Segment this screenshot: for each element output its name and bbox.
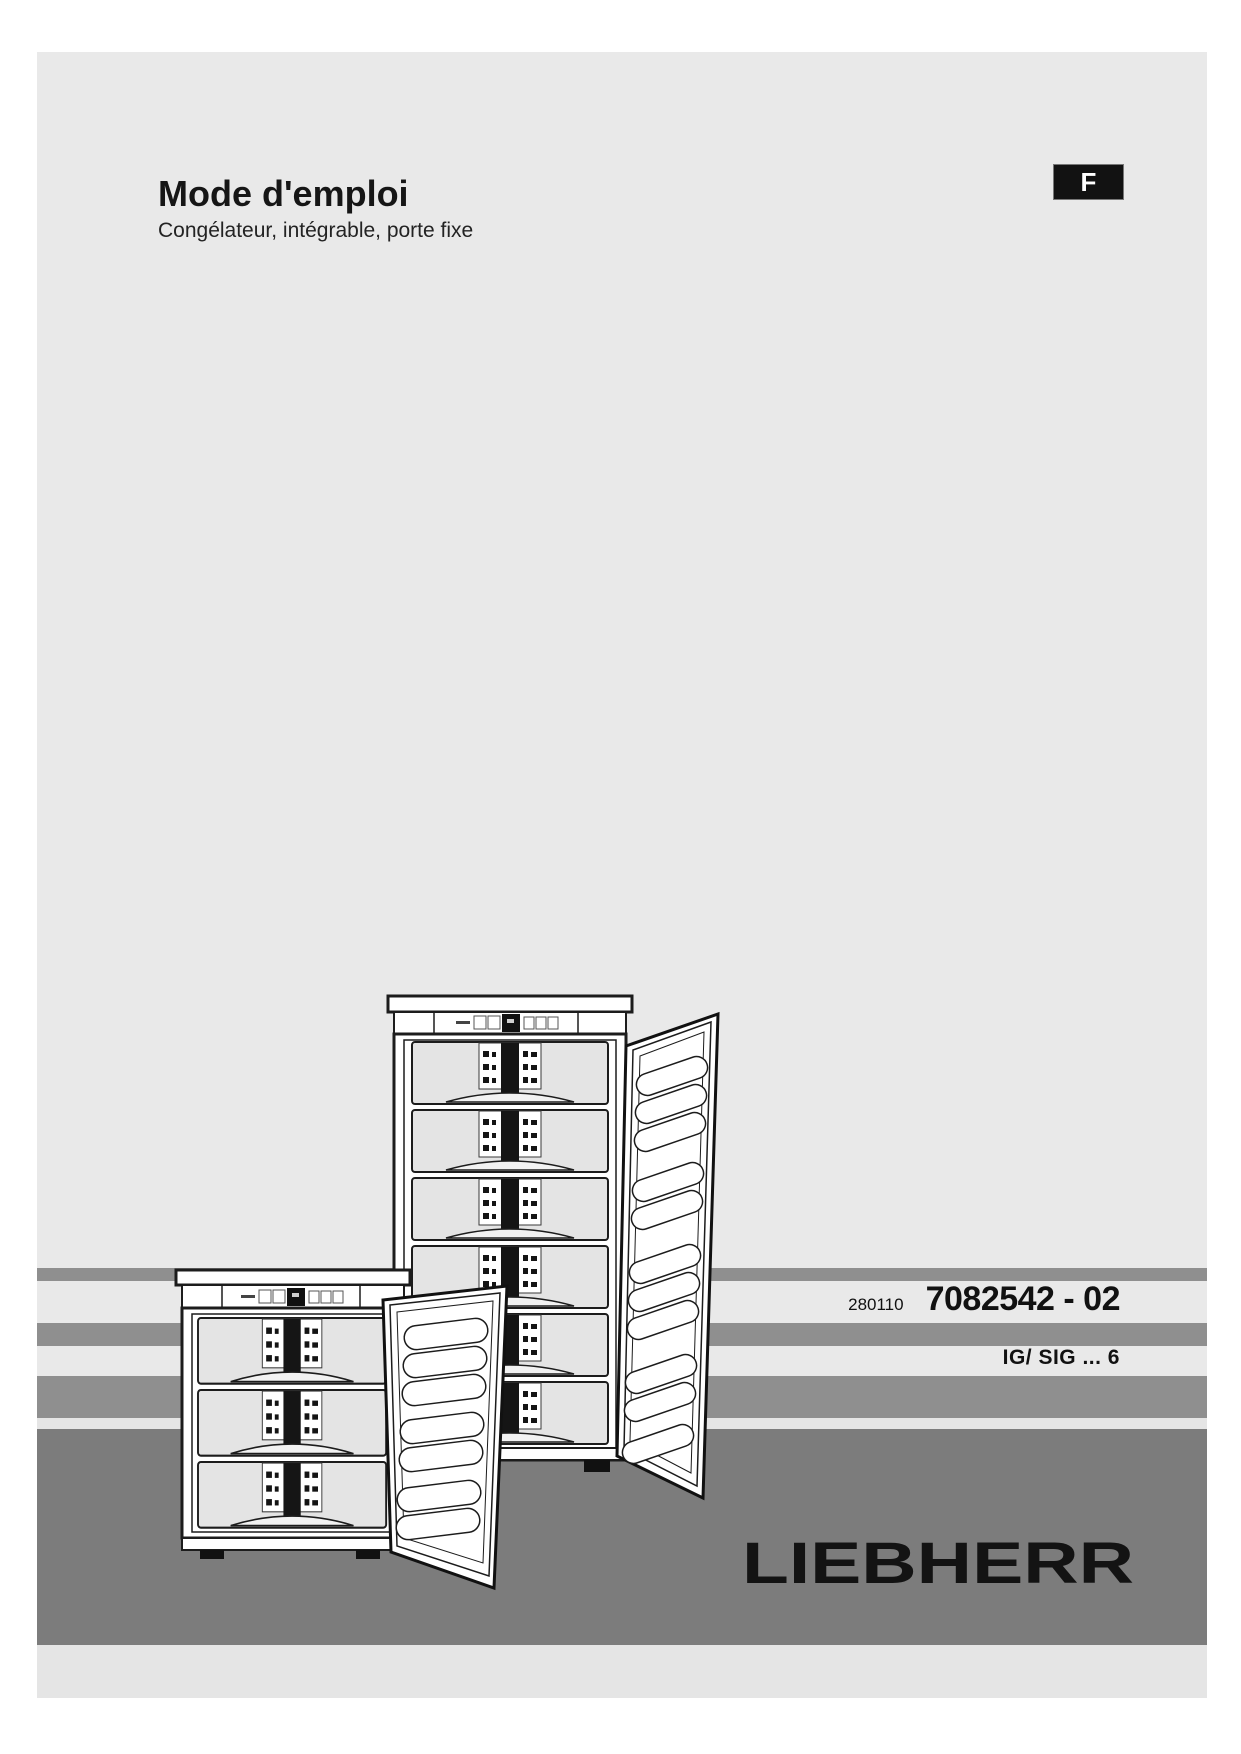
bottom-light-band: [37, 1645, 1207, 1698]
small-freezer-drawers: [198, 1318, 386, 1528]
freezer-illustration: [150, 980, 760, 1620]
manual-cover-page: Mode d'emploi Congélateur, intégrable, p…: [0, 0, 1241, 1754]
tall-freezer-foot-right: [584, 1460, 610, 1472]
small-freezer-base: [182, 1538, 404, 1550]
small-freezer-door: [383, 1286, 507, 1588]
language-badge-letter: F: [1081, 167, 1097, 198]
liebherr-logo-text: LIEBHERR: [742, 1535, 1134, 1593]
small-freezer-foot-left: [200, 1550, 224, 1559]
tall-freezer-door: [617, 1014, 718, 1498]
small-freezer: [176, 1270, 507, 1588]
print-date-code: 280110: [848, 1295, 903, 1315]
model-series: IG/ SIG ... 6: [1003, 1346, 1120, 1370]
document-number-row: 280110 7082542 - 02: [848, 1280, 1120, 1324]
small-freezer-top-cap: [176, 1270, 410, 1285]
small-freezer-foot-right: [356, 1550, 380, 1559]
language-badge: F: [1053, 164, 1124, 200]
page-title: Mode d'emploi: [158, 174, 409, 214]
scanned-page: Mode d'emploi Congélateur, intégrable, p…: [37, 52, 1207, 1698]
page-subtitle: Congélateur, intégrable, porte fixe: [158, 218, 473, 243]
tall-freezer-top-cap: [388, 996, 632, 1012]
liebherr-logo: LIEBHERR: [740, 1535, 1140, 1593]
document-number: 7082542 - 02: [926, 1280, 1120, 1319]
